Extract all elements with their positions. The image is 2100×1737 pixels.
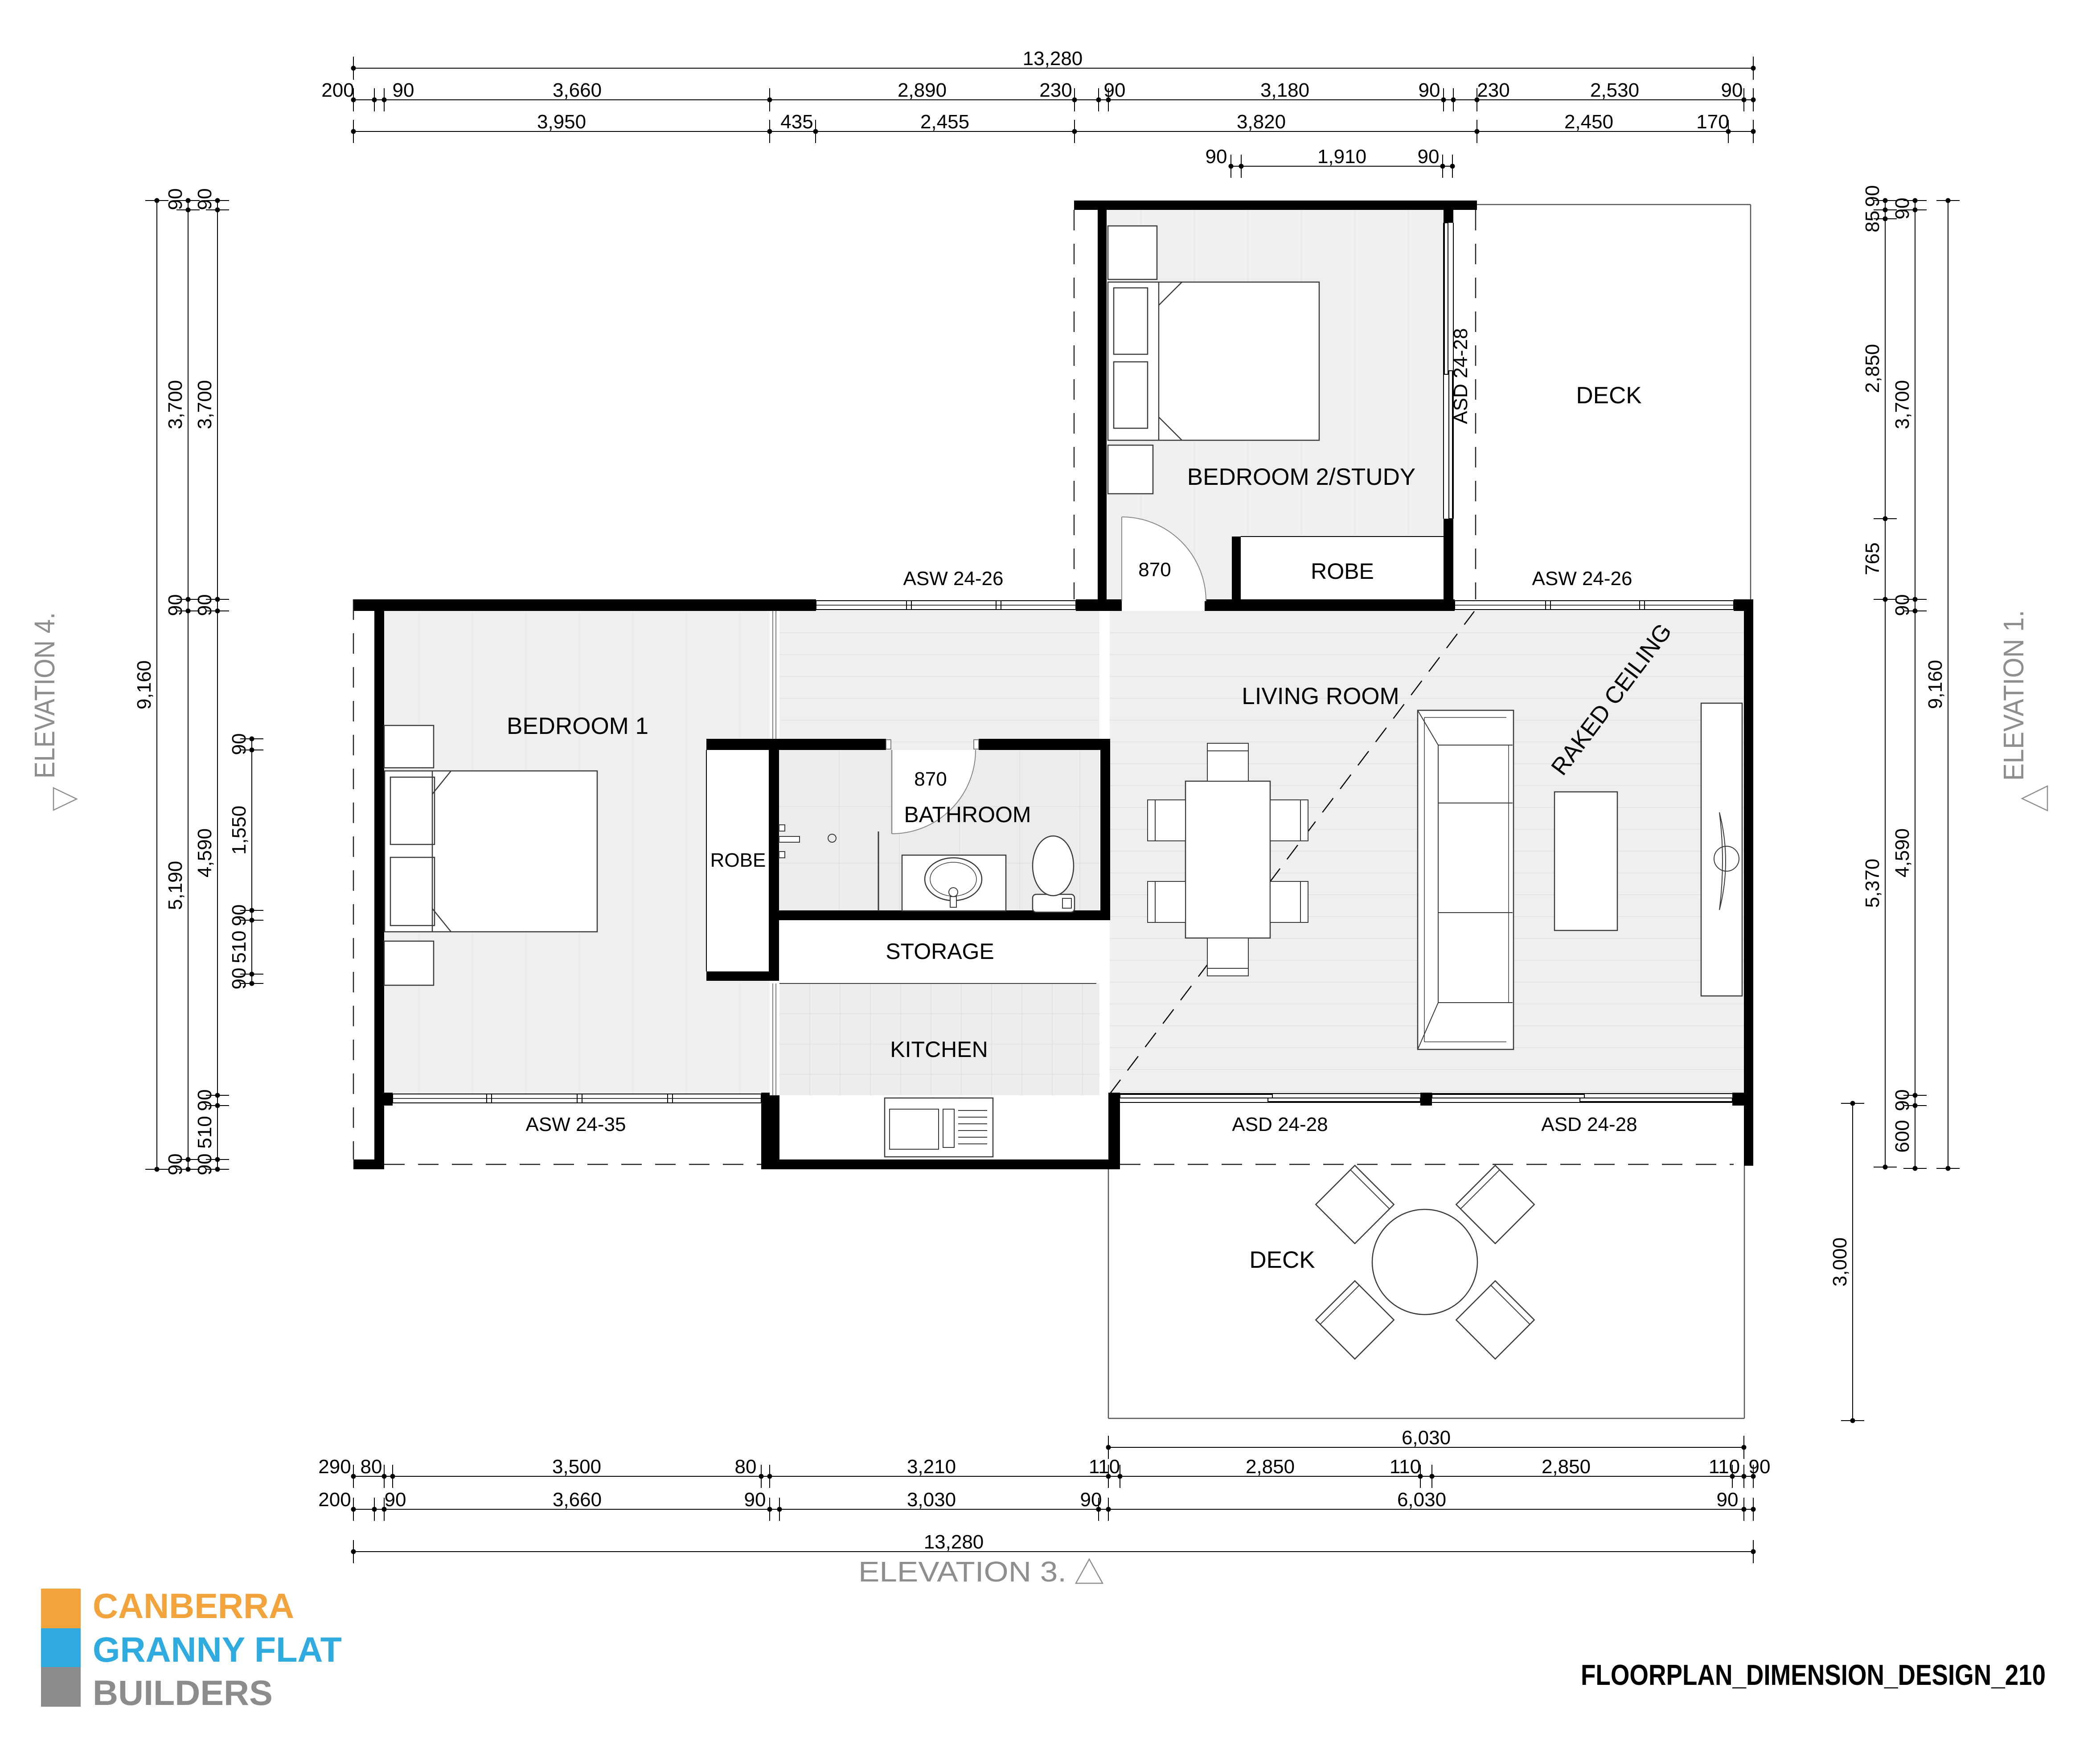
- svg-text:290: 290: [318, 1456, 351, 1478]
- svg-text:90: 90: [228, 905, 250, 926]
- svg-text:510: 510: [194, 1116, 216, 1148]
- svg-text:90: 90: [164, 188, 186, 210]
- svg-text:9,160: 9,160: [1924, 660, 1946, 709]
- svg-text:90: 90: [1080, 1489, 1102, 1511]
- svg-text:90: 90: [164, 1154, 186, 1176]
- svg-text:90: 90: [194, 1090, 216, 1111]
- svg-text:1,910: 1,910: [1317, 146, 1366, 168]
- svg-text:3,500: 3,500: [552, 1456, 601, 1478]
- svg-text:13,280: 13,280: [1023, 48, 1083, 70]
- svg-text:3,700: 3,700: [164, 380, 186, 429]
- svg-text:BEDROOM 2/STUDY: BEDROOM 2/STUDY: [1187, 464, 1415, 490]
- svg-text:90: 90: [1749, 1456, 1771, 1478]
- svg-text:765: 765: [1862, 542, 1883, 575]
- svg-text:90: 90: [1104, 79, 1126, 101]
- svg-text:FLOORPLAN_DIMENSION_DESIGN_210: FLOORPLAN_DIMENSION_DESIGN_210: [1581, 1659, 2046, 1691]
- svg-text:3,820: 3,820: [1237, 111, 1286, 133]
- svg-text:9,160: 9,160: [133, 660, 155, 709]
- svg-text:3,000: 3,000: [1829, 1237, 1851, 1286]
- svg-text:13,280: 13,280: [924, 1531, 984, 1553]
- svg-text:6,030: 6,030: [1402, 1427, 1451, 1449]
- svg-text:3,180: 3,180: [1260, 79, 1309, 101]
- svg-text:3,210: 3,210: [907, 1456, 956, 1478]
- svg-text:230: 230: [1477, 79, 1509, 101]
- svg-text:2,455: 2,455: [920, 111, 969, 133]
- svg-text:90: 90: [228, 968, 250, 990]
- svg-text:110: 110: [1089, 1456, 1120, 1478]
- svg-text:DECK: DECK: [1576, 382, 1641, 409]
- svg-text:90: 90: [1717, 1489, 1739, 1511]
- svg-text:GRANNY FLAT: GRANNY FLAT: [93, 1630, 342, 1669]
- svg-text:90: 90: [164, 594, 186, 616]
- svg-text:2,450: 2,450: [1564, 111, 1613, 133]
- svg-text:600: 600: [1891, 1120, 1913, 1152]
- svg-text:90: 90: [1721, 79, 1743, 101]
- svg-text:BUILDERS: BUILDERS: [93, 1673, 273, 1712]
- svg-text:435: 435: [780, 111, 813, 133]
- svg-text:2,530: 2,530: [1590, 79, 1639, 101]
- svg-text:ASD 24-28: ASD 24-28: [1450, 328, 1472, 424]
- svg-text:1,550: 1,550: [228, 806, 250, 855]
- svg-text:90: 90: [1206, 146, 1227, 168]
- svg-text:85: 85: [1862, 211, 1883, 233]
- svg-text:ROBE: ROBE: [1311, 559, 1374, 584]
- svg-text:ASW 24-35: ASW 24-35: [526, 1114, 626, 1135]
- svg-text:90: 90: [194, 1154, 216, 1176]
- svg-text:ASW 24-26: ASW 24-26: [903, 568, 1004, 590]
- svg-text:STORAGE: STORAGE: [886, 939, 994, 964]
- svg-text:200: 200: [321, 79, 354, 101]
- svg-text:CANBERRA: CANBERRA: [93, 1586, 294, 1626]
- svg-text:90: 90: [1891, 594, 1913, 616]
- svg-text:ELEVATION 3.: ELEVATION 3.: [858, 1556, 1066, 1588]
- svg-text:2,850: 2,850: [1542, 1456, 1591, 1478]
- svg-text:870: 870: [1138, 559, 1171, 581]
- svg-text:80: 80: [735, 1456, 757, 1478]
- svg-text:LIVING ROOM: LIVING ROOM: [1242, 683, 1399, 709]
- svg-text:200: 200: [318, 1489, 351, 1511]
- svg-text:90: 90: [1862, 185, 1883, 207]
- svg-text:90: 90: [1419, 79, 1440, 101]
- svg-text:870: 870: [914, 768, 947, 790]
- svg-text:ROBE: ROBE: [710, 849, 766, 871]
- svg-text:170: 170: [1696, 111, 1729, 133]
- svg-text:5,190: 5,190: [164, 861, 186, 910]
- svg-text:BEDROOM 1: BEDROOM 1: [507, 713, 648, 739]
- svg-text:90: 90: [385, 1489, 406, 1511]
- svg-text:90: 90: [228, 733, 250, 755]
- svg-text:90: 90: [194, 594, 216, 616]
- svg-text:3,660: 3,660: [553, 79, 602, 101]
- svg-text:2,850: 2,850: [1246, 1456, 1295, 1478]
- svg-text:ASW 24-26: ASW 24-26: [1532, 568, 1632, 590]
- svg-text:5,370: 5,370: [1862, 859, 1883, 908]
- svg-text:ELEVATION 1.: ELEVATION 1.: [1997, 610, 2030, 781]
- svg-text:ASD 24-28: ASD 24-28: [1541, 1114, 1637, 1135]
- svg-text:ELEVATION 4.: ELEVATION 4.: [29, 612, 61, 778]
- svg-text:KITCHEN: KITCHEN: [890, 1037, 988, 1062]
- svg-text:90: 90: [744, 1489, 766, 1511]
- svg-text:110: 110: [1709, 1456, 1740, 1478]
- svg-text:3,660: 3,660: [553, 1489, 602, 1511]
- svg-text:90: 90: [1418, 146, 1440, 168]
- svg-text:80: 80: [361, 1456, 382, 1478]
- svg-text:230: 230: [1039, 79, 1072, 101]
- svg-text:3,950: 3,950: [537, 111, 586, 133]
- svg-text:2,890: 2,890: [898, 79, 947, 101]
- svg-text:110: 110: [1390, 1456, 1421, 1478]
- svg-text:3,700: 3,700: [1891, 380, 1913, 429]
- svg-text:3,030: 3,030: [907, 1489, 956, 1511]
- svg-text:ASD 24-28: ASD 24-28: [1232, 1114, 1328, 1135]
- svg-text:4,590: 4,590: [1891, 828, 1913, 877]
- svg-text:90: 90: [393, 79, 414, 101]
- svg-text:2,850: 2,850: [1862, 344, 1883, 393]
- svg-text:90: 90: [1891, 1090, 1913, 1111]
- svg-text:DECK: DECK: [1249, 1247, 1315, 1273]
- svg-text:3,700: 3,700: [194, 380, 216, 429]
- svg-text:510: 510: [228, 930, 250, 963]
- svg-text:90: 90: [194, 188, 216, 210]
- svg-text:90: 90: [1891, 198, 1913, 220]
- svg-text:4,590: 4,590: [194, 828, 216, 877]
- svg-text:6,030: 6,030: [1397, 1489, 1446, 1511]
- svg-text:BATHROOM: BATHROOM: [904, 802, 1031, 827]
